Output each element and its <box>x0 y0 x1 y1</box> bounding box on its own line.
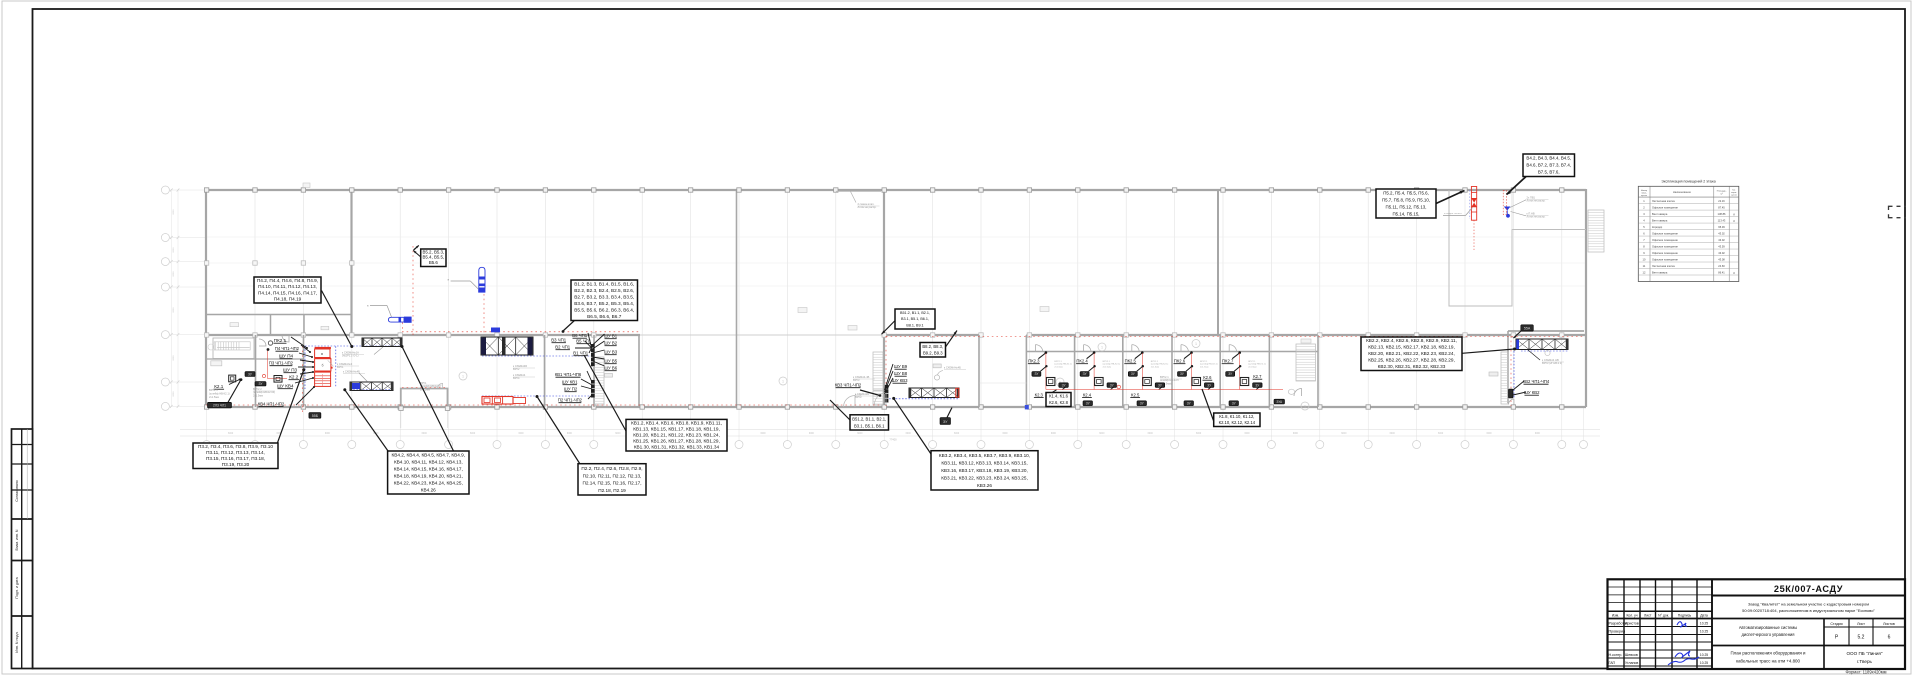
svg-text:П3.2, П3.4, П3.6, П3.8, П3.9,: П3.2, П3.4, П3.6, П3.8, П3.9, П3.10 <box>198 444 273 449</box>
svg-text:диспетчерского управления: диспетчерского управления <box>1742 632 1795 637</box>
svg-text:м²: м² <box>1720 193 1722 196</box>
svg-text:77400: 77400 <box>889 438 897 442</box>
svg-text:6000: 6000 <box>1390 433 1396 435</box>
svg-text:к СХЕМА№4Б: к СХЕМА№4Б <box>343 369 360 373</box>
svg-text:КВ3.2, КВ3.4, КВ3.5, КВ3.7, КВ: КВ3.2, КВ3.4, КВ3.5, КВ3.7, КВ3.9, КВ3.1… <box>939 453 1030 458</box>
svg-text:КВ1.2, КВ1.4, КВ1.6, КВ1.8, КВ: КВ1.2, КВ1.4, КВ1.6, КВ1.8, КВ1.9, КВ1.1… <box>631 420 722 425</box>
svg-text:ШУ В8: ШУ В8 <box>894 371 908 376</box>
svg-text:1: 1 <box>782 380 784 384</box>
svg-text:2х1.5мм: 2х1.5мм <box>253 393 263 397</box>
svg-text:П2.18, П2.19: П2.18, П2.19 <box>598 488 626 493</box>
svg-text:113.43: 113.43 <box>1718 218 1726 222</box>
svg-text:55Б: 55Б <box>312 414 319 418</box>
svg-text:ПК2.6: ПК2.6 <box>1174 359 1186 364</box>
svg-text:6000: 6000 <box>422 433 428 435</box>
svg-text:К2.2: К2.2 <box>289 375 299 380</box>
svg-text:П5.2, П5.4, П5.5, П5.6,: П5.2, П5.4, П5.5, П5.6, <box>1383 191 1429 196</box>
svg-text:КВ2.20, КВ2.21, КВ2.22, КВ2.23: КВ2.20, КВ2.21, КВ2.22, КВ2.23, КВ2.24, <box>1368 351 1455 356</box>
svg-text:Стадия: Стадия <box>1830 622 1842 626</box>
svg-text:КВ4.22, КВ4.23, КВ4.24, КВ4.2: КВ4.22, КВ4.23, КВ4.24, КВ4.25, <box>394 480 463 485</box>
svg-text:к пожарн. насосн.: к пожарн. насосн. <box>1444 213 1462 215</box>
svg-text:К2.3: К2.3 <box>1035 392 1044 397</box>
svg-text:Вент камера: Вент камера <box>1652 218 1668 222</box>
svg-text:В9.2, В9.3: В9.2, В9.3 <box>923 350 943 355</box>
svg-text:В6 ЧП1: В6 ЧП1 <box>572 333 587 338</box>
svg-text:ШУ П2: ШУ П2 <box>564 387 578 392</box>
svg-text:Офисное помещение: Офисное помещение <box>1652 238 1678 242</box>
svg-text:Лист: Лист <box>1857 622 1865 626</box>
svg-text:Офисное помещение: Офисное помещение <box>1652 244 1678 248</box>
svg-text:43.02: 43.02 <box>1718 231 1725 235</box>
svg-text:(шлейф НВ-К2.1): (шлейф НВ-К2.1) <box>209 392 230 396</box>
svg-text:П3.11, П3.12, П3.13, П3.14,: П3.11, П3.12, П3.13, П3.14, <box>206 450 265 455</box>
svg-text:В1 ЧП1: В1 ЧП1 <box>573 351 588 356</box>
svg-text:6000: 6000 <box>809 433 815 435</box>
svg-text:5.2: 5.2 <box>1858 635 1865 641</box>
svg-text:ШУ В5: ШУ В5 <box>604 359 618 364</box>
svg-text:6000: 6000 <box>906 433 912 435</box>
svg-text:10.25: 10.25 <box>1700 653 1708 657</box>
svg-text:щения: щения <box>1641 195 1647 197</box>
svg-text:ВРУ2.1: ВРУ2.1 <box>209 388 218 392</box>
svg-text:Согласовано: Согласовано <box>15 480 19 502</box>
svg-text:ВРУ2.1: ВРУ2.1 <box>1054 361 1062 363</box>
svg-text:1: 1 <box>1304 405 1306 409</box>
svg-text:Аристов: Аристов <box>1625 622 1639 626</box>
svg-text:6000: 6000 <box>325 433 331 435</box>
svg-text:10.25: 10.25 <box>1700 622 1708 626</box>
svg-text:В4.2, В4.3, В4.4, В4.5,: В4.2, В4.3, В4.4, В4.5, <box>1526 156 1571 161</box>
svg-text:2х1.5мм: 2х1.5мм <box>1054 367 1063 369</box>
svg-text:В8.1, В9.1: В8.1, В9.1 <box>906 323 923 327</box>
svg-text:КВ1.20, КВ1.21, КВ1.22, КВ1.23: КВ1.20, КВ1.21, КВ1.22, КВ1.23, КВ1.24, <box>633 432 720 437</box>
svg-text:6000: 6000 <box>1002 433 1008 435</box>
svg-text:Н.контр.: Н.контр. <box>1609 653 1623 657</box>
svg-text:ШУ П4: ШУ П4 <box>279 354 294 359</box>
svg-text:К2.10, К2.12, К2.14: К2.10, К2.12, К2.14 <box>1219 420 1256 425</box>
svg-text:К2.6, К2.8: К2.6, К2.8 <box>1049 400 1069 405</box>
svg-text:Коридор: Коридор <box>1652 225 1663 229</box>
svg-text:ШУ КВ4: ШУ КВ4 <box>277 384 294 389</box>
svg-text:ГАП: ГАП <box>1609 661 1616 665</box>
svg-text:ШУ КВ1: ШУ КВ1 <box>562 380 578 385</box>
svg-text:Шевков: Шевков <box>1625 653 1638 657</box>
svg-text:6000: 6000 <box>173 391 175 397</box>
svg-text:43.02: 43.02 <box>1718 251 1725 255</box>
svg-text:В2.2, В2.3, В2.4, В2.5, В2.6,: В2.2, В2.3, В2.4, В2.5, В2.6, <box>574 288 634 293</box>
svg-text:6000: 6000 <box>1535 433 1541 435</box>
svg-text:П4.18, П4.19: П4.18, П4.19 <box>274 296 302 301</box>
svg-text:N° док.: N° док. <box>1658 614 1669 618</box>
svg-text:К2.5: К2.5 <box>1131 392 1140 397</box>
svg-text:(шлейф НВ-К2.1): (шлейф НВ-К2.1) <box>1151 363 1169 366</box>
svg-text:КВ2.25, КВ2.26, КВ2.27, КВ2.28: КВ2.25, КВ2.26, КВ2.27, КВ2.28, КВ2.29, <box>1368 357 1455 362</box>
svg-text:КВ3 ЧП1-ЧП2: КВ3 ЧП1-ЧП2 <box>835 383 862 388</box>
svg-text:Изм.: Изм. <box>1612 614 1619 618</box>
svg-text:В3.1, В5.1, В6.1,: В3.1, В5.1, В6.1, <box>901 317 929 321</box>
svg-text:КВ3.21, КВ3.22, КВ3.23, КВ3.24: КВ3.21, КВ3.22, КВ3.23, КВ3.24, КВ3.25, <box>941 476 1028 481</box>
svg-text:ШУ В6: ШУ В6 <box>604 366 618 371</box>
svg-text:м: м <box>321 352 323 356</box>
svg-text:В2.7, В3.2, В3.3, В3.4, В3.5,: В2.7, В3.2, В3.3, В3.4, В3.5, <box>574 294 634 299</box>
svg-text:ВРУ2.1: ВРУ2.1 <box>1200 361 1208 363</box>
svg-text:6000: 6000 <box>1486 433 1492 435</box>
svg-text:К1.8, К1.10, К1.12,: К1.8, К1.10, К1.12, <box>1219 414 1254 419</box>
svg-text:6000: 6000 <box>1099 433 1105 435</box>
svg-text:П3 ЧП1-ЧП2: П3 ЧП1-ЧП2 <box>269 361 294 366</box>
svg-text:95.39: 95.39 <box>1718 225 1725 229</box>
svg-text:К1.4, К1.6: К1.4, К1.6 <box>1049 394 1069 399</box>
svg-text:К2.6: К2.6 <box>1203 375 1212 380</box>
svg-text:22.16: 22.16 <box>1718 199 1725 203</box>
svg-text:50:09:0020718:404, расположенн: 50:09:0020718:404, расположенном в индус… <box>1742 608 1875 613</box>
svg-text:Офисное помещение: Офисное помещение <box>1652 231 1678 235</box>
svg-text:КВ4.14, КВ4.15, КВ4.16, КВ4.17: КВ4.14, КВ4.15, КВ4.16, КВ4.17, <box>394 467 463 472</box>
svg-text:Лист: Лист <box>1644 614 1652 618</box>
svg-text:КВ2.2, КВ2.4, КВ2.6, КВ2.8, КВ: КВ2.2, КВ2.4, КВ2.6, КВ2.8, КВ2.9, КВ2.1… <box>1366 338 1457 343</box>
svg-text:6000: 6000 <box>1148 433 1154 435</box>
svg-text:(шлейф НВ-К2.1): (шлейф НВ-К2.1) <box>1103 363 1121 366</box>
svg-text:В5.5, В5.6, В6.2, В6.3, В6.4,: В5.5, В5.6, В6.2, В6.3, В6.4, <box>574 307 634 312</box>
svg-text:КВ2 ЧП1-ЧП4: КВ2 ЧП1-ЧП4 <box>1523 379 1550 384</box>
svg-text:1: 1 <box>1101 346 1103 350</box>
svg-text:Экспликация помещений 2 этажа: Экспликация помещений 2 этажа <box>1661 180 1715 184</box>
svg-text:Кол. уч: Кол. уч <box>1626 614 1637 618</box>
svg-text:П2.10, П2.11, П2.12, П2.13,: П2.10, П2.11, П2.12, П2.13, <box>583 473 642 478</box>
svg-text:б: б <box>322 364 324 368</box>
svg-text:Лестничная клетка: Лестничная клетка <box>1652 264 1675 268</box>
svg-text:6000: 6000 <box>1341 433 1347 435</box>
svg-text:П5.14, П5.15,: П5.14, П5.15, <box>1392 211 1419 216</box>
svg-text:Завод "Квалитет" на земельном: Завод "Квалитет" на земельном участке с … <box>1748 602 1869 607</box>
svg-text:КВ4.26: КВ4.26 <box>421 487 436 492</box>
svg-text:6000: 6000 <box>518 433 524 435</box>
svg-text:2х1.5мм: 2х1.5мм <box>1151 367 1160 369</box>
svg-text:Дата: Дата <box>1700 614 1708 618</box>
svg-text:КВ3.16, КВ3.17, КВ3.18, КВ3.19: КВ3.16, КВ3.17, КВ3.18, КВ3.19, КВ3.20, <box>941 468 1028 473</box>
svg-text:П2.14, П2.15, П2.16, П2.17,: П2.14, П2.15, П2.16, П2.17, <box>582 481 641 486</box>
svg-text:87.45: 87.45 <box>1718 205 1725 209</box>
svg-text:В6.5, В6.6, В6.7: В6.5, В6.6, В6.7 <box>587 314 622 319</box>
svg-text:86.41: 86.41 <box>1718 270 1725 274</box>
svg-text:Площадь,: Площадь, <box>1717 191 1727 193</box>
svg-text:П4 ЧП1-ЧП2: П4 ЧП1-ЧП2 <box>275 346 300 351</box>
svg-text:Подп. и дата: Подп. и дата <box>15 577 19 598</box>
svg-text:КВ2.30, КВ2.31, КВ2.32, КВ2.33: КВ2.30, КВ2.31, КВ2.32, КВ2.33 <box>1378 364 1446 369</box>
svg-text:В1.2, В1.3, В1.4, В1.5, В1.6,: В1.2, В1.3, В1.4, В1.5, В1.6, <box>574 281 634 286</box>
svg-text:Формат: 1189х420мм: Формат: 1189х420мм <box>1845 670 1886 675</box>
svg-text:43.59: 43.59 <box>1718 244 1725 248</box>
svg-text:ШУ КВ3: ШУ КВ3 <box>892 378 908 383</box>
svg-text:ПК2.4: ПК2.4 <box>1076 359 1088 364</box>
svg-text:В5 ЧП1: В5 ЧП1 <box>576 339 591 344</box>
svg-text:43.08: 43.08 <box>1718 257 1725 261</box>
svg-text:55А: 55А <box>1524 327 1531 331</box>
svg-text:КВ4 ЧП1-ЧП2: КВ4 ЧП1-ЧП2 <box>258 401 285 406</box>
svg-text:КВ4.18, КВ4.19, КВ4.20, КВ4.21: КВ4.18, КВ4.19, КВ4.20, КВ4.21, <box>394 473 463 478</box>
svg-text:В4.6, В7.2, В7.3, В7.4,: В4.6, В7.2, В7.3, В7.4, <box>1526 163 1571 168</box>
svg-text:ВРУ2.1: ВРУ2.1 <box>1151 361 1159 363</box>
svg-text:КВ1.13, КВ1.15, КВ1.17, КВ1.18: КВ1.13, КВ1.15, КВ1.17, КВ1.18, КВ1.19, <box>633 426 720 431</box>
svg-text:КВ3.11, КВ3.12, КВ3.13, КВ3.14: КВ3.11, КВ3.12, КВ3.13, КВ3.14, КВ3.15, <box>941 460 1027 465</box>
svg-text:КВ1.25, КВ1.26, КВ1.27, КВ1.28: КВ1.25, КВ1.26, КВ1.27, КВ1.28, КВ1.29, <box>633 438 720 443</box>
svg-text:ЗУА: ЗУА <box>1276 400 1283 404</box>
svg-text:6000: 6000 <box>1196 433 1202 435</box>
svg-text:План расположения оборудования: План расположения оборудования и <box>1731 651 1807 656</box>
svg-text:6000: 6000 <box>615 433 621 435</box>
svg-text:10.25: 10.25 <box>1700 630 1708 634</box>
svg-text:ШУ В1: ШУ В1 <box>604 334 618 339</box>
svg-text:П4.10, П4.11, П4.12, П4.13,: П4.10, П4.11, П4.12, П4.13, <box>258 284 317 289</box>
svg-text:ШУ В3: ШУ В3 <box>604 350 618 355</box>
svg-text:Листов: Листов <box>1883 622 1895 626</box>
svg-text:2х1.5мм: 2х1.5мм <box>420 387 430 391</box>
svg-text:В3.6, В3.7, В5.2, В5.3, В5.4,: В3.6, В3.7, В5.2, В5.3, В5.4, <box>574 301 634 306</box>
svg-text:кабельных трасс на отм +4.800: кабельных трасс на отм +4.800 <box>1736 659 1800 664</box>
svg-text:ШУ В2: ШУ В2 <box>604 341 618 346</box>
svg-text:6000: 6000 <box>470 433 476 435</box>
svg-text:ШУ В9: ШУ В9 <box>894 364 908 369</box>
svg-text:6000: 6000 <box>173 247 175 253</box>
svg-text:2х1.5мм: 2х1.5мм <box>1248 367 1257 369</box>
svg-text:ПК2.1: ПК2.1 <box>274 338 287 343</box>
svg-text:К2.4: К2.4 <box>1083 392 1092 397</box>
svg-text:Угланов: Угланов <box>1625 661 1638 665</box>
svg-text:П2.2, П2.4, П2.6, П2.8, П2.9,: П2.2, П2.4, П2.6, П2.8, П2.9, <box>581 466 642 471</box>
svg-text:КВ4.10, КВ4.11, КВ4.12, КВ4.13: КВ4.10, КВ4.11, КВ4.12, КВ4.13, <box>394 460 463 465</box>
svg-text:В2 ЧП1: В2 ЧП1 <box>555 345 570 350</box>
svg-text:6000: 6000 <box>857 433 863 435</box>
svg-text:6000: 6000 <box>1438 433 1444 435</box>
svg-text:6: 6 <box>1888 635 1891 641</box>
svg-text:Подпись: Подпись <box>1678 614 1692 618</box>
svg-text:6000: 6000 <box>173 209 175 215</box>
svg-text:Лестничная клетка: Лестничная клетка <box>1652 199 1675 203</box>
svg-text:П5.11, П5.12, П5.13,: П5.11, П5.12, П5.13, <box>1386 204 1427 209</box>
svg-text:6000: 6000 <box>1244 433 1250 435</box>
svg-text:6000: 6000 <box>1051 433 1057 435</box>
svg-text:Офисное помещение: Офисное помещение <box>1652 251 1678 255</box>
svg-text:6000: 6000 <box>760 433 766 435</box>
svg-text:Взам. инв. N: Взам. инв. N <box>15 529 19 550</box>
svg-text:В5.2, В5.3,: В5.2, В5.3, <box>422 249 444 254</box>
svg-text:П3.19, П3.20: П3.19, П3.20 <box>222 462 250 467</box>
svg-text:КВ2.13, КВ2.15, КВ2.17, КВ2.18: КВ2.13, КВ2.15, КВ2.17, КВ2.18, КВ2.19, <box>1368 345 1455 350</box>
svg-text:КВ1.30, КВ1.31, КВ1.32, КВ1.3: КВ1.30, КВ1.31, КВ1.32, КВ1.33, КВ1.34 <box>634 444 720 449</box>
svg-text:2х1.5мм: 2х1.5мм <box>1200 367 1209 369</box>
svg-text:1: 1 <box>462 375 464 379</box>
svg-text:В8.2, В8.3,: В8.2, В8.3, <box>922 344 943 349</box>
svg-text:(шлейф НВ-К2.1): (шлейф НВ-К2.1) <box>1054 363 1072 366</box>
svg-text:ШУ КВ2: ШУ КВ2 <box>1524 390 1540 395</box>
svg-text:П4.14, П4.15, П4.16, П4.17,: П4.14, П4.15, П4.16, П4.17, <box>258 290 317 295</box>
svg-text:К2.7: К2.7 <box>1253 374 1262 379</box>
svg-text:Офисное помещение: Офисное помещение <box>1652 257 1678 261</box>
svg-text:щения: щения <box>1731 195 1736 197</box>
svg-text:ПК2.5: ПК2.5 <box>1125 359 1137 364</box>
svg-text:П5.7, П5.8, П5.9, П5.10,: П5.7, П5.8, П5.9, П5.10, <box>1382 198 1430 203</box>
svg-text:В5.4, В5.5,: В5.4, В5.5, <box>422 255 444 260</box>
svg-text:ПК2.7: ПК2.7 <box>1222 359 1234 364</box>
svg-text:П4.2, П4.4, П4.6, П4.8, П4.9,: П4.2, П4.4, П4.6, П4.8, П4.9, <box>257 278 318 283</box>
svg-text:43.02: 43.02 <box>1718 238 1725 242</box>
svg-text:Автоматизированные системы: Автоматизированные системы <box>1739 625 1797 630</box>
svg-text:25К/007-АСДУ: 25К/007-АСДУ <box>1774 584 1843 594</box>
svg-text:2х1.5мм: 2х1.5мм <box>209 395 219 399</box>
svg-text:к СХЕМА№4Б: к СХЕМА№4Б <box>944 366 961 370</box>
svg-text:Вент камера: Вент камера <box>1652 212 1668 216</box>
svg-text:(шлейф НВ-К2.1): (шлейф НВ-К2.1) <box>1200 363 1218 366</box>
svg-text:ВРУ2.1: ВРУ2.1 <box>1248 361 1256 363</box>
svg-text:Наименование: Наименование <box>1673 190 1692 194</box>
svg-text:КВ3.26: КВ3.26 <box>977 483 992 488</box>
svg-text:П2 ЧП1-ЧП2: П2 ЧП1-ЧП2 <box>558 398 583 403</box>
svg-text:Вент камера: Вент камера <box>1652 270 1668 274</box>
svg-text:г.Тверь: г.Тверь <box>1857 659 1872 664</box>
svg-text:2Л3 ЧЛ1: 2Л3 ЧЛ1 <box>213 404 226 408</box>
svg-text:10.25: 10.25 <box>1700 661 1708 665</box>
svg-text:В3.1, В5.1, В6.1: В3.1, В5.1, В6.1 <box>854 423 885 428</box>
svg-text:П3.15, П3.16, П3.17, П3.18,: П3.15, П3.16, П3.17, П3.18, <box>206 456 265 461</box>
svg-text:ООО ПБ "Линия": ООО ПБ "Линия" <box>1846 651 1882 656</box>
svg-text:КВ4.2, КВ4.4, КВ4.5, КВ4.7, КВ: КВ4.2, КВ4.4, КВ4.5, КВ4.7, КВ4.9, <box>392 453 466 458</box>
svg-text:138.86: 138.86 <box>1718 212 1726 216</box>
svg-text:В7.5, В7.6,: В7.5, В7.6, <box>1538 170 1560 175</box>
svg-text:Инв. N подл.: Инв. N подл. <box>15 631 19 652</box>
svg-text:6000: 6000 <box>173 271 175 277</box>
svg-text:Офисное помещение: Офисное помещение <box>1652 205 1678 209</box>
svg-text:6000: 6000 <box>954 433 960 435</box>
svg-text:(шлейф НВ-К2.1): (шлейф НВ-К2.1) <box>1248 363 1266 366</box>
svg-text:КВ1 ЧП1-ЧП6: КВ1 ЧП1-ЧП6 <box>555 372 582 377</box>
svg-text:В5.6: В5.6 <box>429 260 439 265</box>
svg-text:В3 ЧП1: В3 ЧП1 <box>551 338 566 343</box>
svg-text:ВРУ2.1: ВРУ2.1 <box>1103 361 1111 363</box>
svg-text:6000: 6000 <box>567 433 573 435</box>
svg-text:ШУ П3: ШУ П3 <box>283 368 298 373</box>
svg-text:24.60: 24.60 <box>1718 264 1725 268</box>
svg-text:ЗУ: ЗУ <box>943 420 948 424</box>
svg-text:6000: 6000 <box>1293 433 1299 435</box>
svg-text:1: 1 <box>1195 342 1197 346</box>
svg-text:В51.2, В1.1, В2.1,: В51.2, В1.1, В2.1, <box>900 311 930 315</box>
svg-text:Проверил: Проверил <box>1609 630 1626 634</box>
svg-text:6000: 6000 <box>173 355 175 361</box>
svg-text:ПК2.3: ПК2.3 <box>1028 359 1040 364</box>
svg-text:6000: 6000 <box>173 307 175 313</box>
svg-text:6000: 6000 <box>228 433 234 435</box>
svg-text:2х1.5мм: 2х1.5мм <box>1103 367 1112 369</box>
svg-text:В51.2, В1.1, В2.1,: В51.2, В1.1, В2.1, <box>852 416 886 421</box>
